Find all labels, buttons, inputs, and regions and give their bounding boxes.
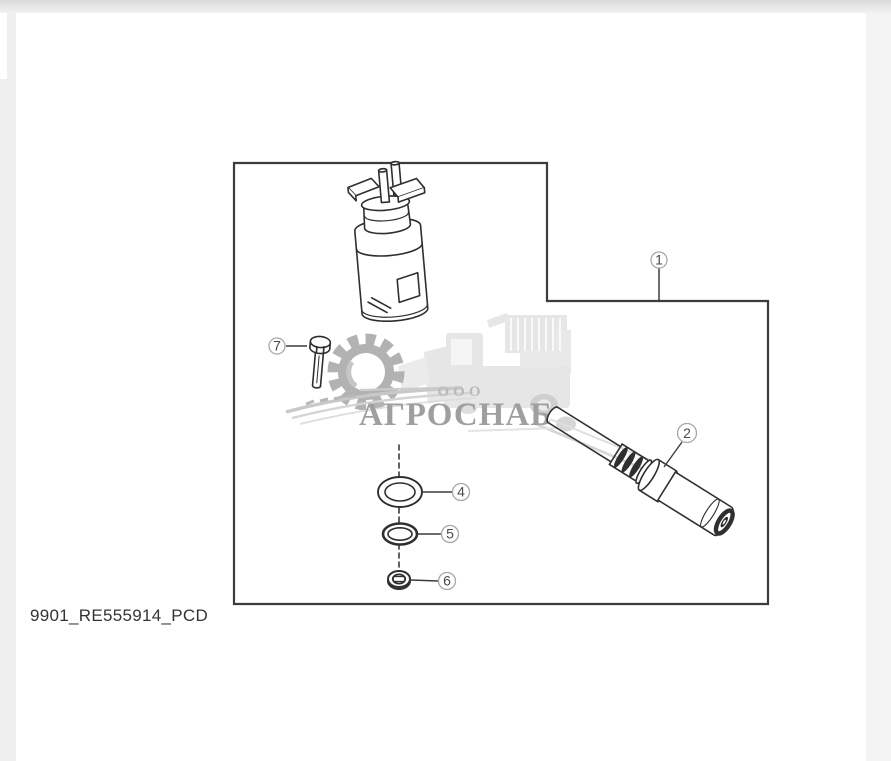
callout-6: 6 bbox=[411, 573, 456, 590]
callout-5: 5 bbox=[418, 526, 459, 543]
watermark-org-name: АГРОСНАБ bbox=[359, 397, 553, 433]
parts-diagram-svg: ООО АГРОСНАБ bbox=[0, 0, 891, 761]
callout-2: 2 bbox=[664, 424, 697, 468]
nut-drawing bbox=[388, 571, 410, 589]
fuel-pump-drawing bbox=[346, 159, 436, 324]
o-ring-drawing bbox=[383, 524, 417, 545]
callout-4: 4 bbox=[423, 484, 470, 501]
svg-text:6: 6 bbox=[443, 573, 451, 589]
sealing-washer-drawing bbox=[378, 477, 422, 507]
svg-text:5: 5 bbox=[446, 526, 454, 542]
callout-7: 7 bbox=[269, 338, 307, 355]
svg-text:7: 7 bbox=[273, 338, 281, 354]
bolt-drawing bbox=[306, 336, 330, 389]
figure-caption: 9901_RE555914_PCD bbox=[30, 606, 208, 626]
svg-text:2: 2 bbox=[683, 425, 691, 441]
svg-text:4: 4 bbox=[457, 484, 465, 500]
svg-text:1: 1 bbox=[655, 252, 663, 268]
watermark: ООО АГРОСНАБ bbox=[286, 313, 658, 470]
callout-1: 1 bbox=[651, 252, 667, 301]
